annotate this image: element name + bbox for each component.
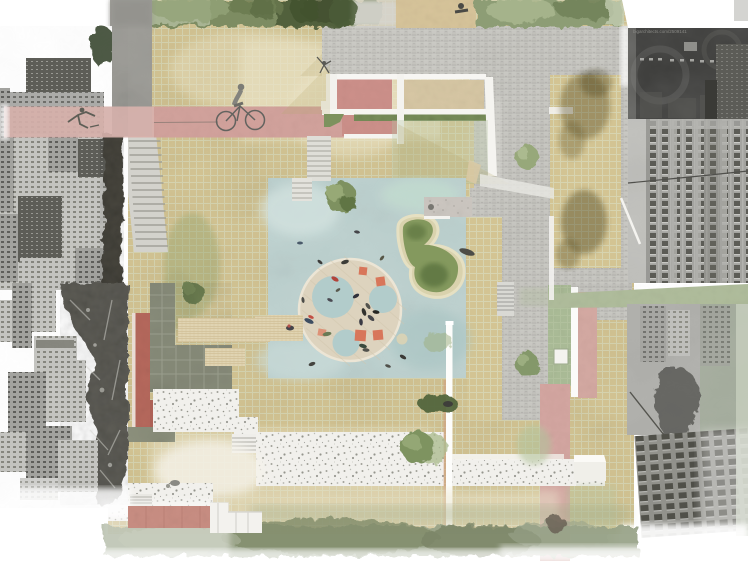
svg-text:bigarchitects.com/2509141: bigarchitects.com/2509141	[633, 29, 687, 34]
